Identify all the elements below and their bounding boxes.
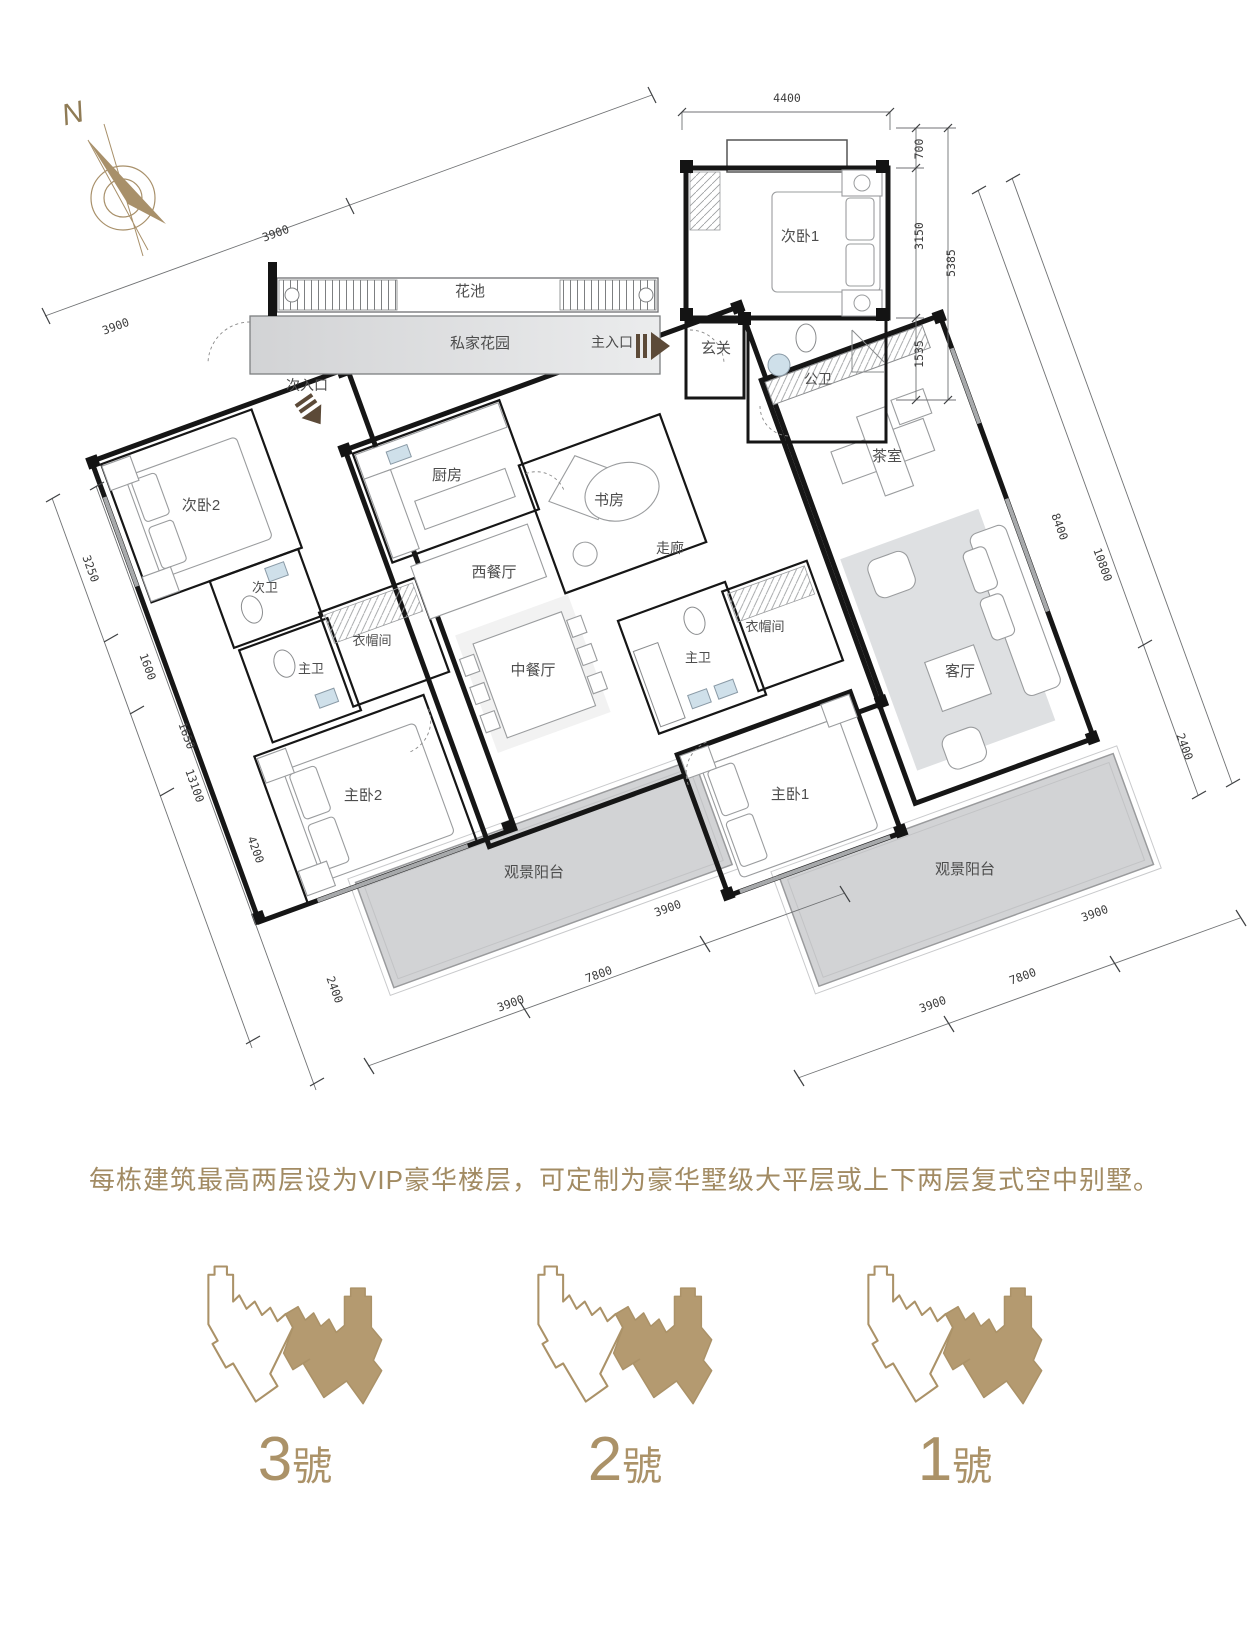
room-label: 次卧2 [182, 497, 220, 514]
building-2-icon [500, 1250, 750, 1415]
dimension-label: 3900 [917, 993, 948, 1016]
left-wing [92, 368, 515, 921]
room-bath-secondary [210, 549, 323, 648]
dimension-label: 3900 [495, 992, 526, 1015]
room-label: 主入口 [591, 334, 633, 350]
room-label: 厨房 [432, 467, 462, 484]
building-1: 1號 [810, 1250, 1100, 1491]
dimension-label: 3900 [100, 315, 131, 338]
room-label: 次卧1 [781, 228, 819, 245]
room-label: 主卧2 [344, 787, 382, 804]
floorplan-drawing: N [0, 0, 1249, 1120]
room-label: 公卫 [804, 371, 832, 387]
room-label: 衣帽间 [745, 619, 784, 634]
dimension-label: 2400 [1173, 731, 1196, 762]
room-label: 茶室 [872, 448, 902, 465]
dimension-label: 3900 [260, 222, 291, 245]
dimension-label: 2400 [323, 974, 346, 1005]
floorplan-page: N [0, 0, 1249, 1625]
dimension-lines [42, 87, 1246, 1090]
room-label: 中餐厅 [510, 662, 555, 679]
compass-rose: N [58, 95, 166, 256]
building-selector-row: 3號 2號 1號 [150, 1250, 1100, 1491]
building-3-label: 3號 [258, 1429, 332, 1491]
dimension-label: 1535 [912, 340, 926, 368]
dimension-label: 7800 [1007, 965, 1038, 988]
room-label: 客厅 [945, 663, 975, 680]
room-label: 西餐厅 [471, 564, 516, 581]
dimension-label: 4400 [773, 91, 801, 105]
room-label: 走廊 [656, 540, 684, 556]
building-1-icon [830, 1250, 1080, 1415]
dimension-label: 10800 [1090, 546, 1115, 583]
room-label: 观景阳台 [504, 864, 564, 881]
room-label: 玄关 [701, 340, 731, 357]
dimension-label: 1650 [175, 720, 198, 751]
room-label: 主卧1 [771, 786, 809, 803]
building-1-label: 1號 [918, 1429, 992, 1491]
compass-north-label: N [58, 95, 87, 132]
room-label: 观景阳台 [935, 861, 995, 878]
room-label: 次卫 [252, 580, 278, 595]
building-3-icon [170, 1250, 420, 1415]
dimension-label: 8400 [1048, 511, 1071, 542]
dimension-label: 3900 [652, 897, 683, 920]
room-label: 主卫 [298, 661, 324, 676]
kitchen-island [415, 468, 515, 529]
room-label: 衣帽间 [352, 633, 391, 648]
room-label: 主卫 [685, 650, 711, 665]
room-label: 次入口 [286, 377, 328, 393]
dimension-label: 3900 [1079, 902, 1110, 925]
top-strip [208, 262, 660, 374]
dimension-label: 3150 [912, 222, 926, 250]
room-label: 花池 [455, 283, 485, 300]
caption-text: 每栋建筑最高两层设为VIP豪华楼层，可定制为豪华墅级大平层或上下两层复式空中别墅… [0, 1160, 1249, 1197]
room-foyer [686, 322, 744, 398]
dimension-label: 5385 [944, 249, 958, 277]
dimension-label: 3250 [79, 553, 102, 584]
room-label: 私家花园 [450, 335, 510, 352]
building-2: 2號 [480, 1250, 770, 1491]
secondary-entrance-arrow [293, 392, 330, 431]
dimension-label: 700 [912, 139, 926, 160]
building-3: 3號 [150, 1250, 440, 1491]
dimension-label: 4200 [244, 834, 267, 865]
dimension-label: 1600 [136, 651, 159, 682]
building-2-label: 2號 [588, 1429, 662, 1491]
room-label: 书房 [594, 492, 624, 509]
